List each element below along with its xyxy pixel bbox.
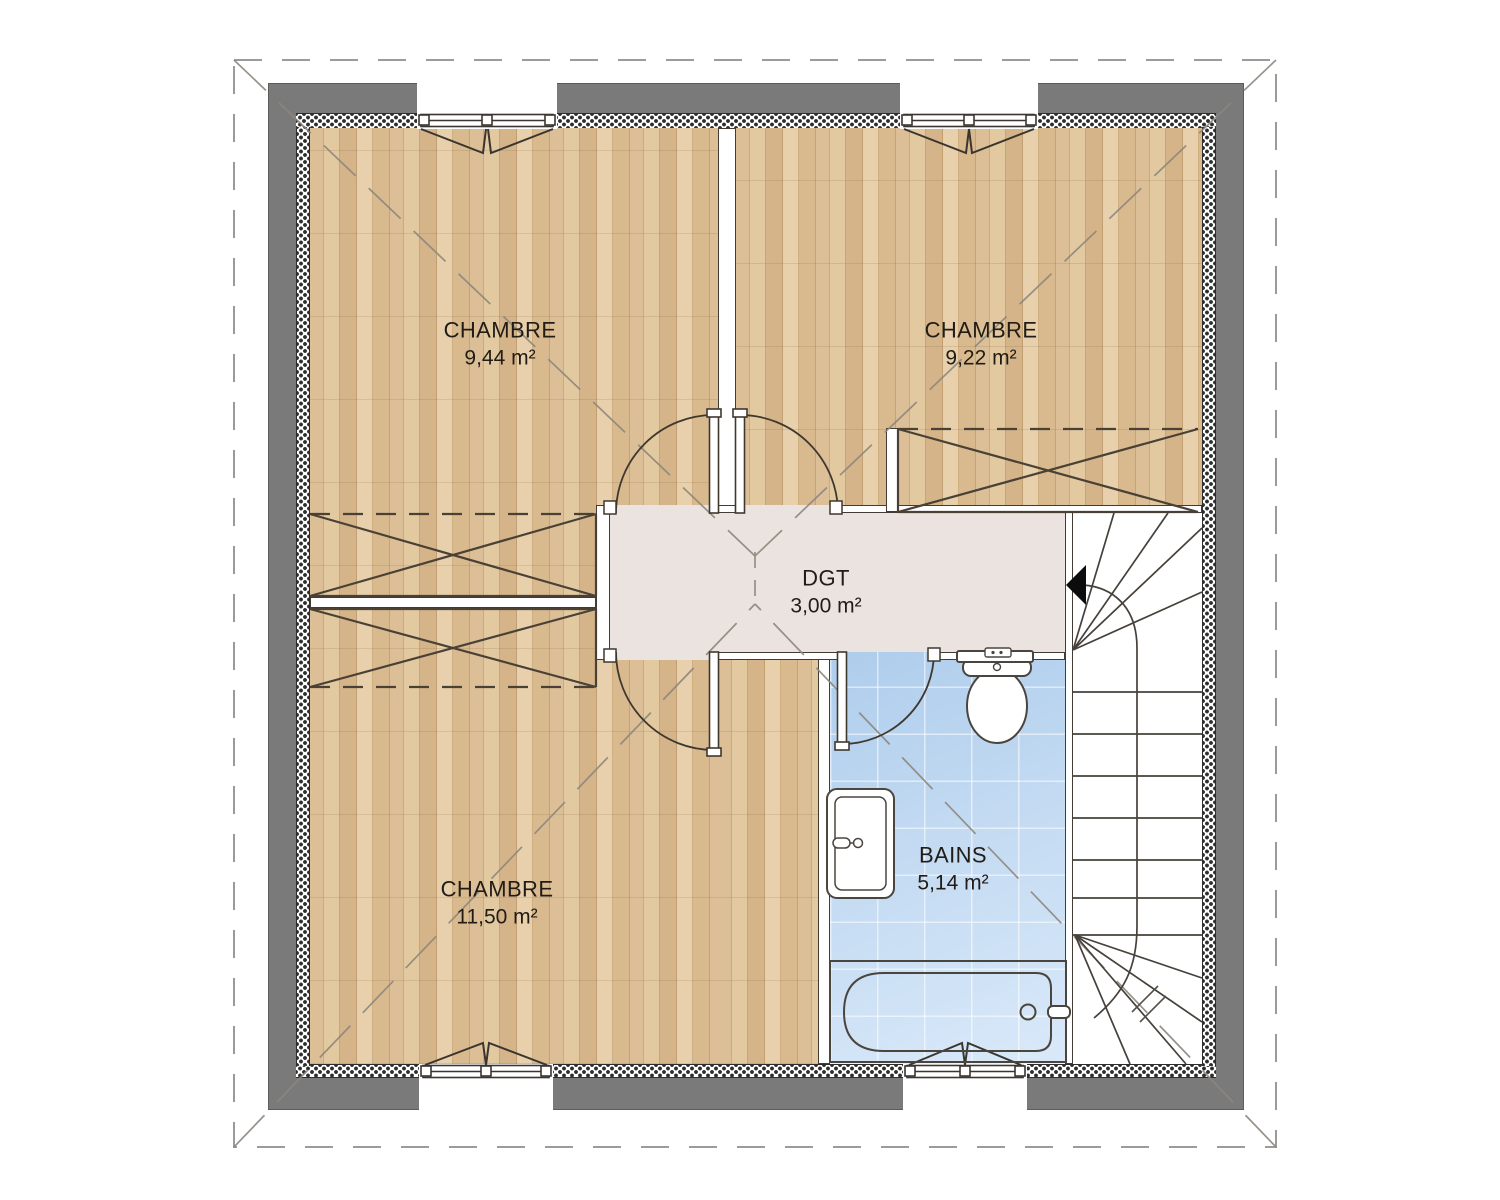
wall-chambre3-bains — [818, 652, 830, 1064]
window-opening-top-right — [900, 83, 1038, 129]
room-area: 9,44 m² — [444, 347, 557, 371]
wall-dgt-bottom-center — [710, 652, 838, 660]
wall-between-closets — [310, 597, 596, 608]
room-name: DGT — [790, 566, 861, 592]
wall-between-chambre1-chambre2 — [718, 128, 736, 513]
room-area: 9,22 m² — [925, 347, 1038, 371]
wall-dgt-top-center — [712, 505, 742, 513]
label-chambre-2: CHAMBRE 9,22 m² — [925, 318, 1038, 371]
wall-dgt-bottom-right — [934, 652, 1065, 660]
room-area: 5,14 m² — [917, 872, 988, 896]
insulation-left — [296, 127, 310, 1066]
room-name: CHAMBRE — [925, 318, 1038, 344]
stairwell-floor — [1065, 505, 1202, 1064]
label-dgt: DGT 3,00 m² — [790, 566, 861, 619]
floor-plan: CHAMBRE 9,44 m² CHAMBRE 9,22 m² DGT 3,00… — [0, 0, 1500, 1200]
insulation-right — [1202, 127, 1216, 1066]
wall-dgt-left — [596, 505, 610, 660]
label-chambre-1: CHAMBRE 9,44 m² — [444, 318, 557, 371]
room-name: CHAMBRE — [441, 877, 554, 903]
window-opening-bottom-left — [419, 1064, 553, 1110]
label-bains: BAINS 5,14 m² — [917, 843, 988, 896]
room-area: 11,50 m² — [441, 906, 554, 930]
window-opening-bottom-bath — [903, 1064, 1027, 1110]
room-name: BAINS — [917, 843, 988, 869]
wall-closet-chambre2 — [886, 428, 898, 512]
window-opening-top-left — [417, 83, 557, 129]
label-chambre-3: CHAMBRE 11,50 m² — [441, 877, 554, 930]
wall-stair-left — [1065, 505, 1073, 1064]
room-area: 3,00 m² — [790, 595, 861, 619]
floor-chambre3-right — [718, 652, 830, 1064]
room-name: CHAMBRE — [444, 318, 557, 344]
